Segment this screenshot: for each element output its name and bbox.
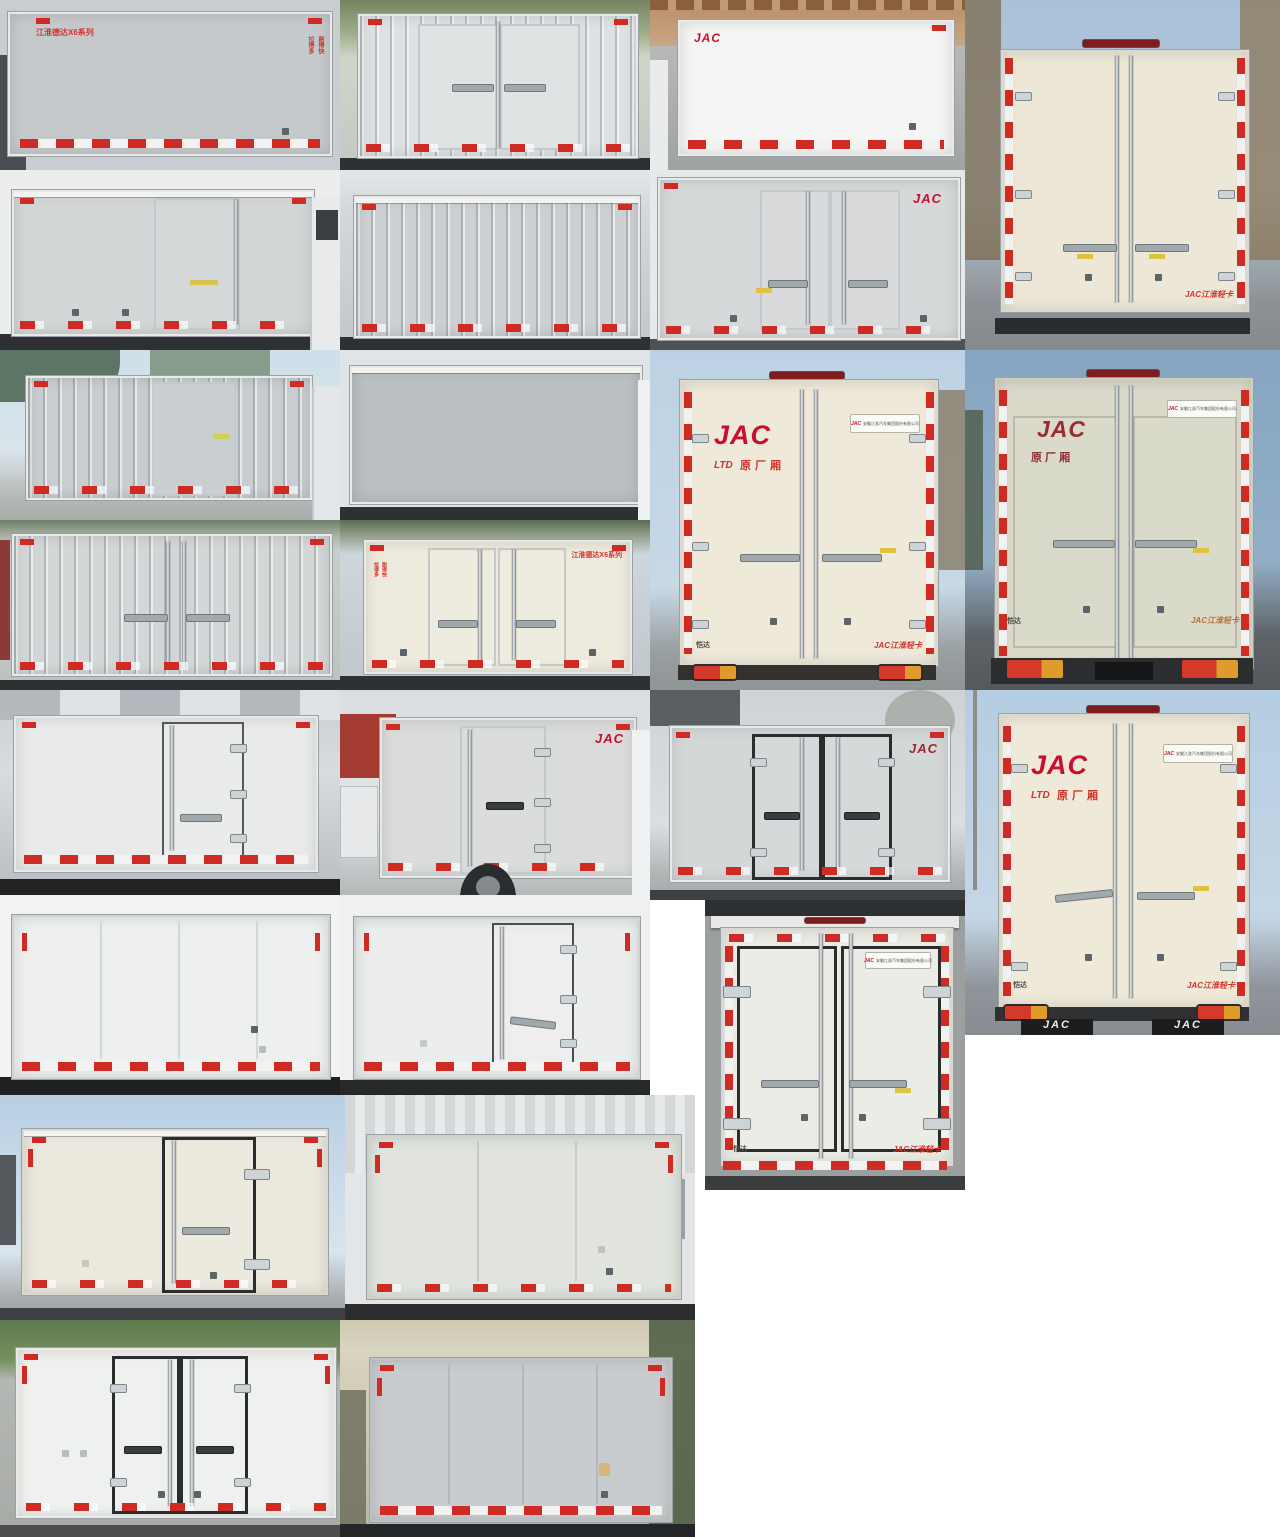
- lock-rod: [190, 1360, 194, 1506]
- ground: [340, 158, 650, 170]
- reflective-strip-bottom: [723, 1161, 947, 1170]
- ground: [345, 1304, 695, 1320]
- taillight: [1007, 660, 1063, 678]
- jac-logo: JAC: [1031, 752, 1088, 779]
- lock-rod: [1129, 724, 1133, 998]
- building: [650, 690, 740, 726]
- rear-door-right: [830, 190, 900, 330]
- door-handle: [516, 620, 556, 628]
- ground: [705, 1176, 965, 1190]
- corner-reflector: [32, 1137, 46, 1143]
- jac-logo: JAC: [909, 742, 938, 755]
- cargo-box: [354, 196, 640, 338]
- cargo-box: JAC: [670, 726, 950, 882]
- keeper: [770, 618, 777, 625]
- hinge: [110, 1478, 127, 1487]
- photo-24-side-gray-backlit: [340, 1320, 695, 1537]
- brick-roofline: [650, 0, 965, 10]
- reflective-strip-left: [684, 392, 692, 654]
- brake-light: [1083, 40, 1159, 47]
- corner-reflector: [370, 545, 384, 551]
- roof-rail: [352, 368, 640, 373]
- keeper: [251, 1026, 258, 1033]
- door-hinge-bar: [234, 200, 238, 324]
- photo-22-side-plain: [345, 1095, 695, 1320]
- rear-door-left: [760, 190, 830, 330]
- corner-reflector: [612, 545, 626, 551]
- warning-tag: [1193, 886, 1209, 891]
- plate-company: 安徽江淮汽车集团股份有限公司: [1176, 751, 1232, 757]
- corner-reflector: [932, 25, 946, 31]
- photo-14-side-door-warehouse: [0, 690, 340, 895]
- lock-rod: [1113, 724, 1117, 998]
- reflective-strip-left: [999, 390, 1007, 656]
- reflective-strip: [388, 863, 628, 871]
- hinge: [1011, 962, 1028, 971]
- corner-reflector: [308, 18, 322, 24]
- ground: [340, 676, 650, 690]
- hinge: [1015, 190, 1032, 199]
- corner-reflector: [664, 183, 678, 189]
- corner-reflector: [22, 1366, 27, 1384]
- hinge: [923, 1118, 951, 1130]
- hinge: [692, 542, 709, 551]
- truck-behind: [650, 60, 668, 170]
- hinge: [560, 995, 577, 1004]
- photo-21-side-door-cream: [0, 1095, 345, 1320]
- cargo-box: 江淮德达X6系列 拉得多 跑得快: [8, 12, 332, 156]
- corner-reflector: [660, 1378, 665, 1396]
- lock-rod: [182, 542, 186, 668]
- rear-door-right: [822, 734, 892, 880]
- kaida-label: 恺达: [1013, 980, 1027, 990]
- cargo-box: JAC 安徽江淮汽车集团股份有限公司 恺达 JAC江淮轻卡: [721, 928, 953, 1166]
- photo-08-side-corrugated-door: [0, 350, 340, 520]
- cargo-box: [22, 1129, 328, 1295]
- hinge: [230, 834, 247, 843]
- reflective-strip-right: [1237, 726, 1245, 996]
- photo-19-side-door-white: [340, 895, 650, 1095]
- hinge: [534, 844, 551, 853]
- cargo-box: JAC LTD 原厂厢 JAC 安徽江淮汽车集团股份有限公司 恺达 JAC江淮轻…: [680, 380, 938, 666]
- oem-box-label: 原 厂 厢: [1031, 452, 1070, 464]
- jac-light-truck-label: JAC江淮轻卡: [1187, 982, 1235, 991]
- corner-reflector: [304, 1137, 318, 1143]
- truck-cab: [312, 386, 340, 520]
- slogan-vertical-a: 拉得多: [372, 562, 380, 577]
- lock-rod: [1115, 56, 1119, 302]
- photo-06-side-corrugated: [340, 170, 650, 350]
- vent: [420, 1040, 427, 1047]
- truck-behind: [340, 786, 378, 858]
- brake-light: [1087, 370, 1159, 377]
- keeper: [1155, 274, 1162, 281]
- reflective-strip: [364, 1062, 630, 1071]
- cargo-box: [358, 14, 638, 158]
- cargo-box: [14, 716, 318, 872]
- hinge: [723, 986, 751, 998]
- warning-tag: [1077, 254, 1093, 259]
- door-handle: [180, 814, 222, 822]
- lock-rod: [842, 192, 846, 324]
- jac-logo: JAC: [694, 32, 721, 44]
- brake-light: [1087, 706, 1159, 713]
- warning-tag: [1193, 548, 1209, 553]
- hinge: [750, 758, 767, 767]
- cab-window: [316, 210, 338, 240]
- ground: [340, 337, 650, 350]
- certification-plate: JAC 安徽江淮汽车集团股份有限公司: [865, 952, 931, 969]
- mudflap-jac: JAC: [1021, 1019, 1093, 1035]
- plate-jac-logo: JAC: [1164, 751, 1174, 757]
- rear-door-left: [752, 734, 822, 880]
- reflective-strip: [20, 139, 320, 148]
- cargo-box: [16, 1348, 336, 1518]
- cargo-box: 拉得多 跑得快 江淮德达X6系列: [364, 540, 632, 674]
- corner-reflector: [310, 539, 324, 545]
- lock-rod: [500, 927, 504, 1059]
- hinge: [1220, 962, 1237, 971]
- tree: [340, 1390, 366, 1537]
- taillight: [1182, 660, 1238, 678]
- corner-reflector: [325, 1366, 330, 1384]
- reflective-strip: [22, 1062, 320, 1071]
- oem-mark: LTD: [714, 460, 733, 471]
- corner-reflector: [292, 198, 306, 204]
- reflective-strip: [362, 324, 632, 332]
- side-door: [152, 382, 236, 496]
- door-gap: [496, 22, 500, 148]
- corner-reflector: [676, 732, 690, 738]
- panel-seam: [477, 1141, 479, 1281]
- warning-tag: [880, 548, 896, 553]
- warning-tag: [1149, 254, 1165, 259]
- door-handle: [849, 1080, 907, 1088]
- keeper: [801, 1114, 808, 1121]
- roof-rail: [24, 1131, 326, 1136]
- cargo-box: [12, 190, 314, 336]
- oem-mark: LTD: [1031, 790, 1050, 801]
- corner-reflector: [22, 722, 36, 728]
- hinge: [230, 790, 247, 799]
- corner-reflector: [375, 1155, 380, 1173]
- taillight: [879, 666, 921, 679]
- taillight: [694, 666, 736, 679]
- reflective-strip-top: [729, 934, 945, 942]
- corner-reflector: [20, 539, 34, 545]
- cargo-box: JAC: [678, 20, 954, 156]
- corner-reflector: [655, 1142, 669, 1148]
- hinge: [1015, 272, 1032, 281]
- plate-company: 安徽江淮汽车集团股份有限公司: [863, 421, 919, 427]
- hinge: [1218, 272, 1235, 281]
- corner-reflector: [380, 1365, 394, 1371]
- vent: [122, 309, 129, 316]
- corner-reflector: [377, 1378, 382, 1396]
- reflective-strip-right: [1237, 58, 1245, 304]
- slogan-vertical-b: 跑得快: [316, 36, 324, 54]
- truck-behind: [638, 380, 650, 520]
- cargo-box: JAC江淮轻卡: [1001, 50, 1249, 312]
- jac-light-truck-label: JAC江淮轻卡: [893, 1146, 941, 1155]
- plate-jac-logo: JAC: [851, 421, 861, 427]
- hinge: [692, 434, 709, 443]
- vent: [80, 1450, 87, 1457]
- vent: [909, 123, 916, 130]
- ground: [0, 1077, 340, 1095]
- reflective-strip: [26, 1503, 326, 1511]
- hinge: [234, 1384, 251, 1393]
- hinge: [534, 798, 551, 807]
- ground: [340, 507, 650, 520]
- keeper: [1157, 606, 1164, 613]
- corner-reflector: [36, 18, 50, 24]
- plate-company: 安徽江淮汽车集团股份有限公司: [1180, 406, 1236, 412]
- door-handle: [504, 84, 546, 92]
- hinge: [110, 1384, 127, 1393]
- mudflap-jac: JAC: [1152, 1019, 1224, 1035]
- cargo-box: [12, 534, 332, 676]
- hinge: [244, 1259, 270, 1270]
- plate-jac-logo: JAC: [864, 958, 874, 964]
- keeper: [194, 1491, 201, 1498]
- corner-reflector: [368, 19, 382, 25]
- vent: [62, 1450, 69, 1457]
- corner-reflector: [20, 198, 34, 204]
- side-door: [154, 198, 240, 330]
- slogan-vertical-b: 跑得快: [380, 562, 388, 577]
- door-handle: [182, 1227, 230, 1235]
- lock-rod: [168, 1360, 172, 1506]
- corner-reflector: [930, 732, 944, 738]
- keeper: [859, 1114, 866, 1121]
- jac-light-truck-label: JAC江淮轻卡: [1191, 617, 1239, 626]
- door-handle: [196, 1446, 234, 1454]
- photo-05-side-door: [0, 170, 340, 350]
- lock-rod: [819, 934, 823, 1158]
- cargo-box: [354, 917, 640, 1079]
- reflective-strip: [666, 326, 952, 334]
- photo-12-side-corrugated-doors: [0, 520, 340, 690]
- lock-rod: [478, 550, 482, 660]
- lock-rod: [849, 934, 853, 1158]
- photo-09-side-gray: [340, 350, 650, 520]
- license-recess: [1095, 662, 1153, 680]
- photo-18-side-white: [0, 895, 340, 1095]
- hinge: [909, 542, 926, 551]
- panel-seam: [575, 1141, 577, 1281]
- tree: [965, 0, 1001, 260]
- keeper: [844, 618, 851, 625]
- photo-07-side-doors: JAC: [650, 170, 965, 350]
- photo-02-rear-corrugated: [340, 0, 650, 170]
- lock-rod: [800, 390, 804, 658]
- keeper: [1157, 954, 1164, 961]
- door-handle: [848, 280, 888, 288]
- keeper: [589, 649, 596, 656]
- reflective-strip-left: [1005, 58, 1013, 304]
- door-handle: [124, 614, 168, 622]
- oem-box-label: 原厂厢: [1057, 790, 1102, 802]
- lock-rod: [1129, 386, 1133, 658]
- lock-rod: [172, 1141, 176, 1283]
- tree: [965, 410, 983, 570]
- photo-20-rear-white: JAC 安徽江淮汽车集团股份有限公司 恺达 JAC江淮轻卡: [705, 900, 965, 1190]
- jac-logo: JAC: [595, 732, 624, 745]
- reflective-strip: [366, 144, 630, 152]
- reflective-strip: [380, 1506, 662, 1515]
- hinge: [878, 848, 895, 857]
- ground: [650, 339, 965, 350]
- reflective-strip: [678, 867, 942, 875]
- photo-23-side-doors-trees: [0, 1320, 345, 1537]
- corner-reflector: [34, 381, 48, 387]
- door-handle: [1135, 244, 1189, 252]
- door-handle: [186, 614, 230, 622]
- lock-rod: [814, 390, 818, 658]
- brake-light: [770, 372, 844, 379]
- ground: [0, 1525, 345, 1537]
- warning-tag: [895, 1088, 911, 1093]
- corner-reflector: [386, 724, 400, 730]
- truck-behind: [0, 1155, 16, 1245]
- door-handle: [452, 84, 494, 92]
- keeper: [730, 315, 737, 322]
- reflective-strip-right: [1241, 390, 1249, 656]
- door-handle: [1053, 540, 1115, 548]
- corner-reflector: [317, 1149, 322, 1167]
- hinge: [560, 945, 577, 954]
- lock-rod: [1129, 56, 1133, 302]
- corner-reflector: [362, 204, 376, 210]
- reflective-strip-right: [926, 392, 934, 654]
- jac-logo: JAC: [714, 422, 771, 449]
- hinge: [750, 848, 767, 857]
- corner-reflector: [668, 1155, 673, 1173]
- door-handle: [1137, 892, 1195, 900]
- cargo-box: JAC: [380, 718, 636, 878]
- reflective-strip: [32, 1280, 318, 1288]
- corner-reflector: [625, 933, 630, 951]
- reflective-strip: [377, 1284, 671, 1292]
- truck-cab: [310, 198, 340, 350]
- door-handle: [124, 1446, 162, 1454]
- hinge: [1011, 764, 1028, 773]
- photo-13-side-doors-cream: 拉得多 跑得快 江淮德达X6系列: [340, 520, 650, 690]
- door-handle: [768, 280, 808, 288]
- cargo-box: [26, 376, 312, 500]
- keeper: [1085, 954, 1092, 961]
- photo-01-side-gray: 江淮德达X6系列 拉得多 跑得快: [0, 0, 340, 170]
- ground: [0, 680, 340, 690]
- ground: [340, 1080, 650, 1095]
- hinge: [1218, 92, 1235, 101]
- pole: [973, 690, 977, 890]
- corner-reflector: [290, 381, 304, 387]
- cargo-box: JAC LTD 原厂厢 JAC 安徽江淮汽车集团股份有限公司 恺达 JAC江淮轻…: [999, 714, 1249, 1008]
- hinge: [534, 748, 551, 757]
- corner-reflector: [364, 933, 369, 951]
- door-handle: [1135, 540, 1197, 548]
- keeper: [400, 649, 407, 656]
- door-handle: [822, 554, 882, 562]
- slogan-vertical-a: 拉得多: [306, 36, 314, 54]
- door-handle: [438, 620, 478, 628]
- oem-box-label: 原厂厢: [740, 460, 785, 472]
- corner-reflector: [22, 933, 27, 951]
- model-series-label: 江淮德达X6系列: [571, 552, 622, 560]
- bumper: [995, 318, 1250, 334]
- corner-reflector: [24, 1354, 38, 1360]
- lock-rod: [1115, 386, 1119, 658]
- door-handle: [190, 280, 218, 285]
- corner-reflector: [616, 724, 630, 730]
- lock-rod: [836, 738, 840, 870]
- corner-reflector: [648, 1365, 662, 1371]
- ground: [650, 890, 965, 900]
- door-handle: [486, 802, 524, 810]
- taillight: [1005, 1006, 1047, 1019]
- jac-light-truck-label: JAC江淮轻卡: [1185, 291, 1233, 300]
- hinge: [723, 1118, 751, 1130]
- photo-11-rear-corrugated: JAC 原 厂 厢 JAC 安徽江淮汽车集团股份有限公司 恺达 JAC江淮轻卡: [965, 350, 1280, 690]
- truck-top: [705, 900, 965, 916]
- vent: [598, 1246, 605, 1253]
- hinge: [560, 1039, 577, 1048]
- photo-10-rear-cream: JAC LTD 原厂厢 JAC 安徽江淮汽车集团股份有限公司 恺达 JAC江淮轻…: [650, 350, 965, 690]
- hinge: [244, 1169, 270, 1180]
- plate-company: 安徽江淮汽车集团股份有限公司: [876, 958, 932, 964]
- cargo-box: [350, 366, 642, 504]
- lock-rod: [166, 542, 170, 668]
- corner-reflector: [296, 722, 310, 728]
- reflective-strip: [372, 660, 624, 668]
- lock-rod: [512, 550, 516, 660]
- photo-04-rear-cream: JAC江淮轻卡: [965, 0, 1280, 350]
- photo-16-side-doors-jac: JAC: [650, 690, 965, 900]
- red-truck-behind: [0, 540, 10, 660]
- cargo-box: [12, 915, 330, 1079]
- rear-door-left: [428, 548, 496, 666]
- rear-door-right: [1133, 416, 1237, 648]
- door-handle: [214, 434, 230, 439]
- corner-reflector: [618, 204, 632, 210]
- vent: [72, 309, 79, 316]
- keeper: [606, 1268, 613, 1275]
- keeper: [1083, 606, 1090, 613]
- hinge: [692, 620, 709, 629]
- jac-logo: JAC: [1037, 418, 1086, 441]
- brake-light: [805, 918, 865, 923]
- hinge: [909, 434, 926, 443]
- corner-reflector: [315, 933, 320, 951]
- ground: [340, 1524, 695, 1537]
- corner-reflector: [614, 19, 628, 25]
- door-handle: [1055, 889, 1114, 903]
- corner-reflector: [28, 1149, 33, 1167]
- tree: [150, 350, 270, 376]
- lock-rod: [800, 738, 804, 870]
- kaida-label: 恺达: [733, 1144, 747, 1154]
- hinge: [1015, 92, 1032, 101]
- tree: [939, 390, 965, 570]
- panel-seam: [448, 1364, 450, 1504]
- vent: [282, 128, 289, 135]
- hinge: [923, 986, 951, 998]
- panel-seam: [100, 921, 102, 1059]
- hinge: [1220, 764, 1237, 773]
- kaida-label: 恺达: [1007, 616, 1021, 626]
